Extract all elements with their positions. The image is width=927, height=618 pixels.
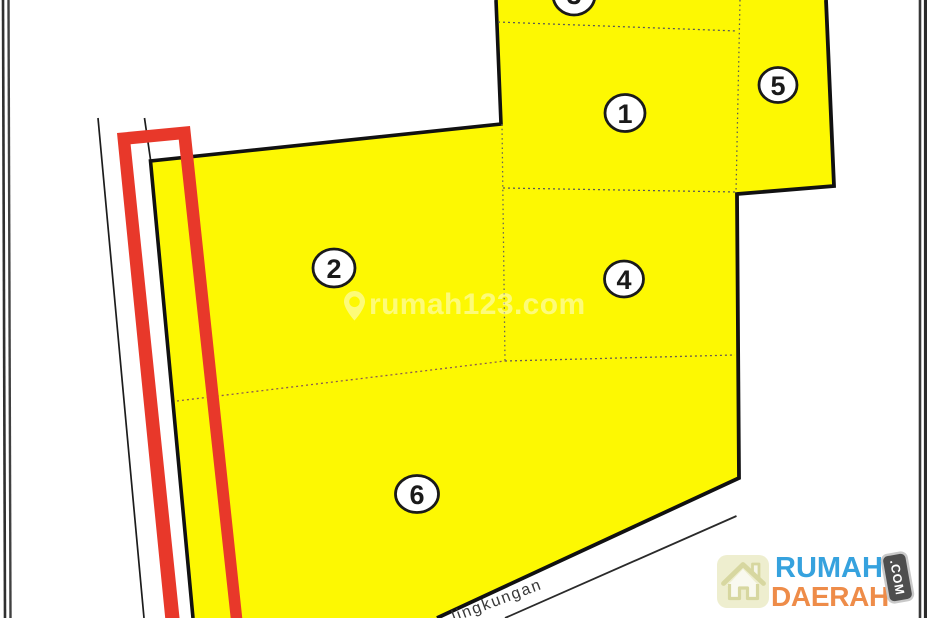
svg-text:5: 5 (770, 71, 785, 101)
svg-text:6: 6 (409, 480, 424, 510)
svg-text:rumah123.com: rumah123.com (369, 288, 586, 321)
svg-text:1: 1 (617, 99, 632, 129)
svg-text:DAERAH: DAERAH (771, 581, 889, 612)
svg-text:2: 2 (326, 254, 341, 284)
svg-text:RUMAH: RUMAH (775, 552, 883, 584)
svg-text:4: 4 (616, 265, 631, 295)
svg-text:3: 3 (566, 0, 581, 10)
